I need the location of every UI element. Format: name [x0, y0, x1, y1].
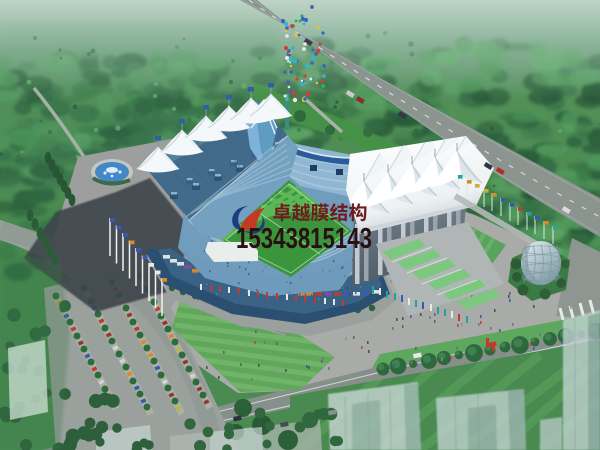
svg-text:15343815143: 15343815143: [236, 223, 372, 254]
